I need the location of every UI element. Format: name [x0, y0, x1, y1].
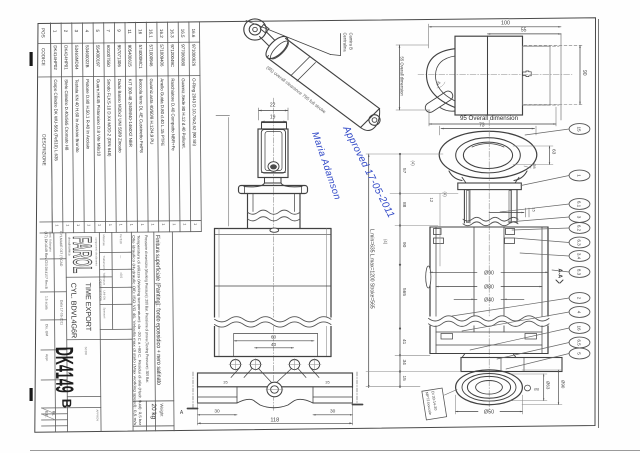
svg-text:57: 57: [401, 168, 407, 174]
svg-text:35: 35: [223, 380, 228, 385]
svg-text:O-Ring 2043 D.10,78x2,62 (90 S: O-Ring 2043 D.10,78x2,62 (90 Sh): [191, 78, 197, 146]
svg-text:1: 1: [55, 224, 59, 226]
svg-text:Snodo FLKS-10 D.X4 MOD.2 (DIN: Snodo FLKS-10 D.X4 MOD.2 (DIN 648): [106, 79, 112, 157]
svg-text:TIME EXPORT: TIME EXPORT: [84, 283, 93, 332]
svg-text:90: 90: [581, 70, 587, 76]
svg-text:DK414HP02: DK414HP02: [53, 45, 58, 70]
svg-text:1: 1: [151, 223, 155, 225]
svg-text:Ø90: Ø90: [561, 380, 566, 389]
svg-text:(4): (4): [411, 161, 416, 167]
svg-text:Guarniz.Sede 80 H.12 d.40 Poli: Guarniz.Sede 80 H.12 d.40 Poliuret.: [181, 78, 187, 149]
svg-text:Finitura superficiale (Paintin: Finitura superficiale (Painting): fondo …: [154, 235, 162, 386]
svg-text:5: 5: [577, 352, 582, 355]
svg-text:8.3: 8.3: [577, 269, 582, 276]
svg-text:SCDR: SCDR: [84, 347, 88, 356]
svg-text:53460022B: 53460022B: [85, 45, 90, 68]
svg-text:1: 1: [193, 223, 197, 225]
svg-text:Materiale: Materiale: [102, 234, 106, 246]
svg-text:905400615: 905400615: [127, 45, 132, 68]
svg-text:22: 22: [270, 103, 276, 109]
svg-text:CYLMAKE 037 (?)CAD: CYLMAKE 037 (?)CAD: [59, 231, 63, 267]
svg-text:Stelo Cilindro D.40x565 Cromat: Stelo Cilindro D.40x565 Cromato H8: [64, 79, 70, 151]
svg-text:554000197: 554000197: [95, 45, 100, 68]
svg-text:Boccola ferro DL 4E Cuscinetto: Boccola ferro DL 4E Cuscinetto Fe/P8: [138, 79, 144, 154]
svg-text:Ø90: Ø90: [484, 270, 494, 276]
svg-text:1: 1: [161, 223, 165, 225]
svg-text:6.3: 6.3: [577, 239, 582, 246]
svg-text:Ø8: Ø8: [534, 387, 539, 391]
svg-text:565: 565: [401, 288, 407, 296]
svg-text:12: 12: [429, 198, 434, 203]
svg-text:Sost. il disegno: Sost. il disegno: [48, 231, 52, 252]
svg-text:Ø50: Ø50: [484, 410, 494, 416]
svg-text:Centralina: Centralina: [343, 33, 348, 53]
svg-text:16.1: 16.1: [148, 29, 153, 38]
svg-text:6.1: 6.1: [577, 201, 582, 208]
svg-text:oleodinamica: oleodinamica: [67, 237, 71, 256]
svg-text:1: 1: [108, 224, 112, 226]
svg-text:15: 15: [577, 126, 582, 132]
svg-text:DK4149: DK4149: [50, 347, 78, 393]
svg-text:Pistone D.80 H.50.1 R-40 In Ac: Pistone D.80 H.50.1 R-40 In Acciaio: [85, 79, 91, 150]
svg-text:DESCRIZIONE: DESCRIZIONE: [41, 134, 46, 165]
svg-text:90: 90: [401, 242, 407, 248]
svg-text:(4): (4): [383, 239, 388, 245]
svg-text:571009406: 571009406: [159, 44, 164, 67]
svg-text:41: 41: [401, 339, 407, 345]
svg-text:1: 1: [65, 224, 69, 226]
svg-text:574000MC1: 574000MC1: [138, 45, 143, 70]
svg-text:1: 1: [172, 223, 176, 225]
svg-text:1: 1: [97, 224, 101, 226]
svg-text:APPROV: APPROV: [95, 409, 99, 421]
svg-text:CYL. BDVL4G6R: CYL. BDVL4G6R: [69, 283, 78, 339]
svg-text:—: —: [119, 255, 123, 258]
svg-text:1: 1: [182, 223, 186, 225]
svg-text:30: 30: [330, 409, 336, 415]
svg-text:6.5: 6.5: [577, 339, 582, 346]
svg-text:1: 1: [140, 224, 144, 226]
svg-text:6.2: 6.2: [577, 225, 582, 232]
svg-text:Tolleranze: Tolleranze: [102, 272, 106, 285]
svg-text:1: 1: [577, 174, 582, 177]
svg-text:Weight: Weight: [159, 403, 164, 417]
svg-text:571000946: 571000946: [149, 44, 154, 67]
svg-text:Data 17-05-2011: Data 17-05-2011: [59, 300, 63, 325]
svg-text:1: 1: [87, 224, 91, 226]
svg-text:Testata KN 40 H.60 In Acciaio: Testata KN 40 H.60 In Acciaio Brunito: [74, 79, 80, 153]
svg-text:Ø40: Ø40: [484, 297, 494, 303]
svg-text:CODICE: CODICE: [41, 48, 46, 66]
svg-text:(4): (4): [443, 192, 448, 198]
svg-text:Camira B: Camira B: [349, 33, 354, 51]
svg-text:1: 1: [129, 224, 133, 226]
svg-text:977060080: 977060080: [180, 44, 185, 67]
svg-text:Spessori: Spessori: [102, 307, 106, 318]
svg-text:11: 11: [127, 29, 132, 34]
svg-text:20 kg: 20 kg: [150, 403, 157, 419]
svg-text:DESCRIPTION: DESCRIPTION: [98, 279, 102, 302]
svg-text:16.5: 16.5: [180, 29, 185, 38]
svg-text:Guarniz.asta 40/50/8 H.12/4,9: Guarniz.asta 40/50/8 H.12/4,9 PU: [149, 78, 155, 144]
svg-text:Ø8: Ø8: [532, 164, 536, 169]
svg-text:1: 1: [119, 224, 123, 226]
svg-text:Anello Guida D.80 d.40 L.15: Anello Guida D.80 d.40 L.15 PTFE: [160, 78, 166, 146]
svg-text:UNI-EN: UNI-EN: [102, 290, 106, 300]
svg-text:KIT 300-48 2/40M/40-1460X2 NBR: KIT 300-48 2/40M/40-1460X2 NBR: [128, 79, 134, 147]
svg-text:73: 73: [479, 122, 485, 128]
svg-text:Trattamento: Trattamento: [102, 255, 106, 270]
svg-text:4: 4: [577, 311, 582, 314]
svg-text:88: 88: [401, 202, 407, 208]
svg-text:19: 19: [270, 115, 276, 121]
svg-text:componenti oleodinamici: componenti oleodinamici: [94, 237, 98, 266]
svg-text:Appr.: Appr.: [45, 354, 49, 362]
svg-text:1: 1: [76, 224, 80, 226]
svg-text:DK414HP01: DK414HP01: [63, 45, 68, 70]
svg-text:100: 100: [501, 21, 510, 27]
svg-text:30: 30: [214, 409, 220, 415]
svg-text:60: 60: [271, 335, 277, 341]
svg-text:16: 16: [138, 29, 143, 35]
svg-text:Fe 510: Fe 510: [119, 234, 123, 244]
svg-text:16.6: 16.6: [191, 29, 196, 38]
svg-text:Dis. GM: Dis. GM: [45, 324, 49, 336]
svg-text:Raschiatore D.40 Compatto NBR+: Raschiatore D.40 Compatto NBR+Fe: [170, 78, 176, 151]
svg-text:3: 3: [577, 216, 582, 219]
svg-text:63: 63: [550, 149, 556, 155]
svg-text:16.3: 16.3: [170, 29, 175, 38]
svg-text:957071306: 957071306: [117, 45, 122, 68]
svg-text:Corpo Cilindro DK WU-565 (Fe51: Corpo Cilindro DK WU-565 (Fe510) L.635: [53, 79, 59, 161]
svg-text:1:5 scala: 1:5 scala: [44, 296, 48, 310]
svg-text:601007550: 601007550: [106, 45, 111, 68]
svg-text:35: 35: [325, 380, 330, 385]
svg-text:±0,5: ±0,5: [119, 272, 123, 278]
svg-text:15: 15: [401, 376, 407, 382]
svg-text:3.4: 3.4: [577, 253, 582, 260]
svg-text:971000626: 971000626: [191, 44, 196, 67]
svg-text:16: 16: [577, 325, 582, 331]
svg-text:97120049C: 97120049C: [170, 44, 175, 67]
svg-text:B: B: [59, 399, 74, 409]
svg-text:16.2: 16.2: [159, 29, 164, 38]
svg-text:118: 118: [270, 417, 279, 423]
svg-text:40: 40: [271, 342, 277, 348]
svg-text:2: 2: [577, 297, 582, 300]
svg-text:Ø80: Ø80: [484, 285, 494, 291]
svg-text:L.min=635 L.max=1200 Stroke=: L.min=635 L.max=1200 Stroke=565: [369, 229, 375, 309]
svg-text:55 Overall dimension: 55 Overall dimension: [399, 57, 404, 97]
svg-text:03 DK4107 Rev.B: 03 DK4107 Rev.B: [44, 262, 48, 290]
svg-text:Ø63: Ø63: [546, 381, 551, 390]
svg-text:POS: POS: [41, 28, 46, 38]
svg-text:(17) DK4149 Rev.C: (17) DK4149 Rev.C: [44, 231, 48, 263]
svg-text:Guarn.HK45 Pistoncino D.8 Vite: Guarn.HK45 Pistoncino D.8 Vite M8x10: [96, 79, 102, 157]
svg-text:55: 55: [521, 28, 527, 34]
svg-text:Dado Basso M30x2 UNI 5589 Zin: Dado Basso M30x2 UNI 5589 Zincato: [117, 79, 123, 153]
svg-text:34: 34: [401, 360, 407, 366]
svg-text:A-A: A-A: [557, 269, 563, 279]
svg-text:5346SMD04: 5346SMD04: [74, 45, 79, 70]
